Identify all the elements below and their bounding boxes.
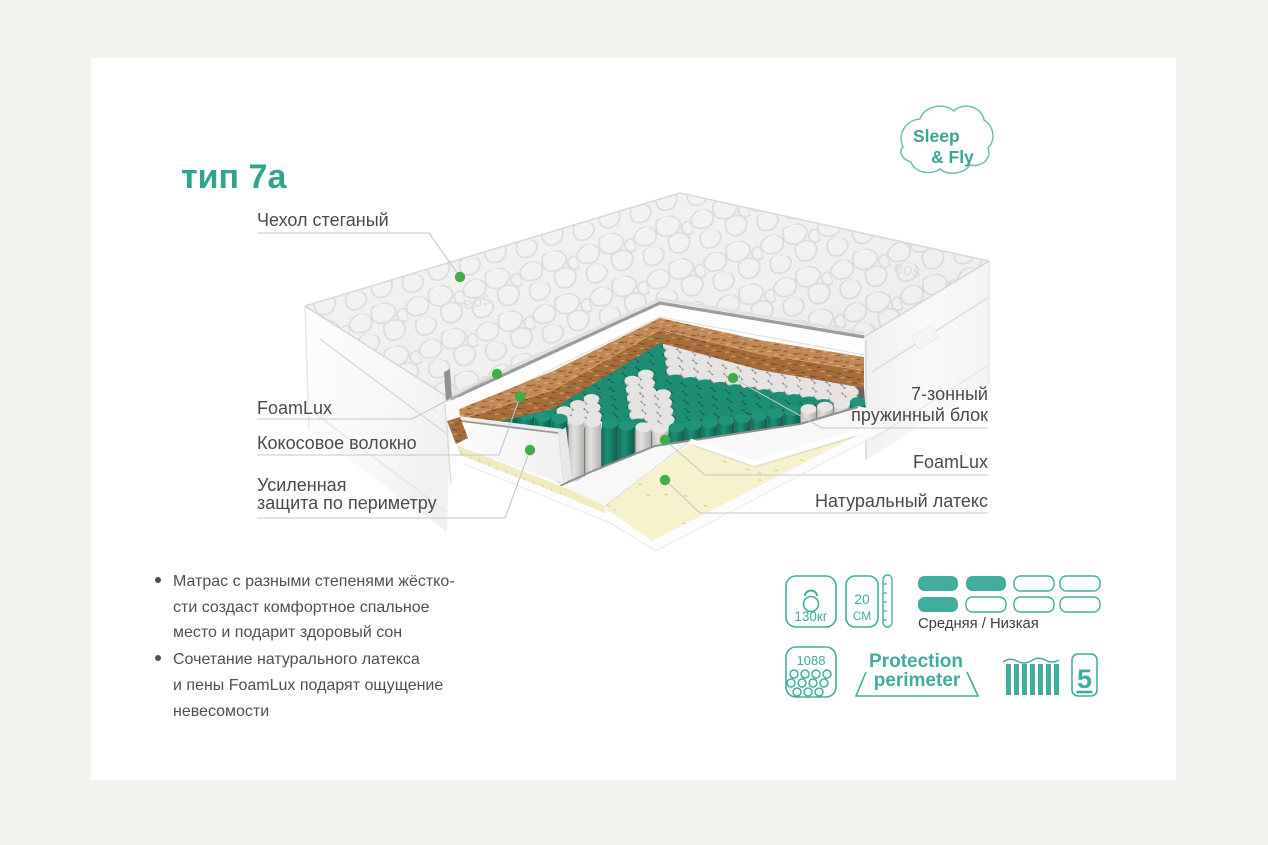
svg-text:Кокосовое волокно: Кокосовое волокно (257, 433, 417, 453)
svg-text:5: 5 (1077, 664, 1092, 694)
svg-text:Натуральный латекс: Натуральный латекс (815, 491, 988, 511)
svg-text:Чехол стеганый: Чехол стеганый (257, 210, 389, 230)
svg-text:FoamLux: FoamLux (257, 398, 332, 418)
svg-text:Sleep: Sleep (913, 126, 960, 146)
svg-text:7-зонный: 7-зонный (911, 384, 988, 404)
svg-text:сти создаст комфортное спальн: сти создаст комфортное спальное (173, 599, 430, 616)
svg-text:Protection: Protection (869, 651, 963, 672)
svg-text:Сочетание натурального латекса: Сочетание натурального латекса (173, 651, 420, 668)
svg-text:невесомости: невесомости (173, 703, 269, 720)
svg-text:тип 7а: тип 7а (181, 158, 287, 196)
svg-text:Средняя / Низкая: Средняя / Низкая (918, 616, 1039, 632)
svg-text:защита по периметру: защита по периметру (257, 493, 437, 513)
svg-text:1088: 1088 (797, 653, 826, 668)
svg-text:место и подарит здоровый сон: место и подарит здоровый сон (173, 624, 402, 641)
svg-text:& Fly: & Fly (931, 147, 974, 167)
svg-text:perimeter: perimeter (874, 670, 961, 691)
svg-text:Матрас с разными степенями жёс: Матрас с разными степенями жёстко- (173, 573, 455, 590)
svg-text:пружинный блок: пружинный блок (851, 405, 988, 425)
svg-text:Усиленная: Усиленная (257, 475, 346, 495)
svg-text:130кг: 130кг (794, 609, 827, 624)
svg-text:FoamLux: FoamLux (913, 452, 988, 472)
svg-text:и пены FoamLux подарят ощущени: и пены FoamLux подарят ощущение (173, 677, 443, 694)
svg-text:20: 20 (854, 591, 870, 607)
svg-text:СМ: СМ (853, 609, 872, 623)
